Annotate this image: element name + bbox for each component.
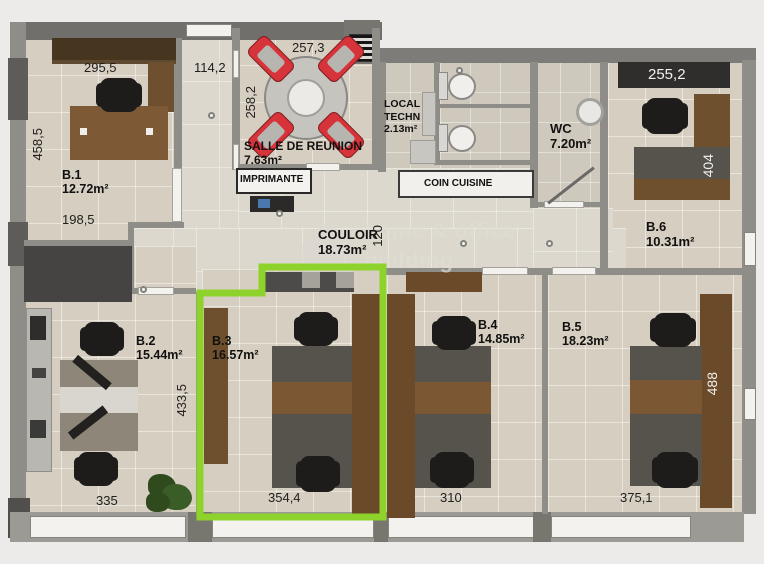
room-area-b1: 12.72m² <box>62 182 109 196</box>
office-chair-b2-bottom <box>78 452 114 486</box>
desk-wood-b6-low <box>634 179 730 200</box>
toilet-2-tank <box>438 124 448 152</box>
toilet-1-tank <box>438 72 448 100</box>
cabinet-local-1 <box>422 92 436 136</box>
wall-bottom-pier-1 <box>188 512 212 542</box>
desk-wood-b5-panel <box>700 294 732 508</box>
dim-b3-bottom: 354,4 <box>268 490 301 505</box>
desk-wood-b4-mid <box>415 382 491 414</box>
meeting-table-hub <box>287 79 325 117</box>
room-name-local-1: LOCAL <box>384 98 420 111</box>
ceiling-light-1 <box>276 210 283 217</box>
desk-return-b1 <box>148 62 174 112</box>
desk-gray-b4-top <box>415 346 491 382</box>
dim-b6-top: 255,2 <box>648 66 686 83</box>
room-area-wc: 7.20m² <box>550 137 591 152</box>
window-bottom-2 <box>212 516 374 538</box>
dim-b5-desk: 488 <box>704 372 720 395</box>
room-label-printer: IMPRIMANTE <box>240 174 303 186</box>
window-right-1 <box>744 232 756 266</box>
watermark-line-1: home & office <box>364 218 516 244</box>
room-name-b5: B.5 <box>562 320 609 334</box>
room-name-meeting: SALLE DE REUNION <box>244 140 362 154</box>
room-label-b4: B.4 14.85m² <box>478 318 525 347</box>
room-label-couloir: COULOIR 18.73m² <box>318 228 378 258</box>
wall-b4-b5 <box>542 274 548 514</box>
desk-wood-b5-mid <box>630 380 702 414</box>
room-name-couloir: COULOIR <box>318 228 378 243</box>
room-name-b4: B.4 <box>478 318 525 332</box>
office-chair-b5-top <box>654 313 692 347</box>
desk-b1-handle-1 <box>80 128 87 135</box>
desk-gray-b3-top <box>272 346 352 382</box>
ceiling-light-5 <box>208 112 215 119</box>
sideboard-b3 <box>204 308 228 464</box>
ceiling-light-2 <box>140 286 147 293</box>
wall-b1-bottom-a <box>128 222 184 228</box>
dim-entry-top: 114,2 <box>194 60 226 75</box>
office-chair-b2-top <box>84 322 120 356</box>
plant-leaf-3 <box>146 492 170 512</box>
wall-b2-b3 <box>196 292 202 514</box>
office-chair-b3-bottom <box>300 456 336 492</box>
dim-b4-bottom: 310 <box>440 490 462 505</box>
door-b5 <box>552 267 596 275</box>
room-area-b5: 18.23m² <box>562 334 609 348</box>
room-area-meeting: 7.63m² <box>244 154 362 168</box>
room-area-b3: 16.57m² <box>212 348 259 362</box>
dim-b2-bottom: 335 <box>96 493 118 508</box>
room-area-couloir: 18.73m² <box>318 243 378 258</box>
window-bottom-1 <box>30 516 186 538</box>
wall-left-pier-1 <box>8 58 28 120</box>
wall-top-right <box>378 48 756 63</box>
dim-couloir-width: 120 <box>370 225 385 247</box>
cabinet-local-2 <box>410 140 436 164</box>
room-area-b2: 15.44m² <box>136 348 183 362</box>
ceiling-light-6 <box>456 67 463 74</box>
dim-b6-desk: 404 <box>700 154 716 177</box>
room-area-b4: 14.85m² <box>478 332 525 346</box>
room-label-b3: B.3 16.57m² <box>212 334 259 363</box>
window-right-2 <box>744 388 756 420</box>
room-name-b2: B.2 <box>136 334 183 348</box>
floor-plan-page: { "watermark": { "line1": "home & office… <box>0 0 764 564</box>
desk-b1-handle-2 <box>146 128 153 135</box>
side-desk-item-1 <box>30 316 46 340</box>
ceiling-light-4 <box>546 240 553 247</box>
wall-stall-divider <box>434 104 534 108</box>
room-label-b1: B.1 12.72m² <box>62 168 109 197</box>
side-desk-item-2 <box>32 368 46 378</box>
toilet-1-bowl <box>448 73 476 100</box>
side-desk-item-3 <box>30 420 46 438</box>
toilet-2-bowl <box>448 125 476 152</box>
window-bottom-4 <box>551 516 691 538</box>
desk-gray-b5-top <box>630 346 702 380</box>
room-name-wc: WC <box>550 122 591 137</box>
room-area-local: 2.13m² <box>384 123 420 136</box>
dim-b1-left: 458,5 <box>30 128 45 161</box>
office-chair-b3-top <box>298 312 334 346</box>
room-name-b3: B.3 <box>212 334 259 348</box>
room-label-local: LOCAL TECHN 2.13m² <box>384 98 420 136</box>
room-label-b5: B.5 18.23m² <box>562 320 609 349</box>
storage-b2-top <box>24 246 132 302</box>
desk-wood-b4-panel <box>387 294 415 518</box>
room-name-b1: B.1 <box>62 168 109 182</box>
printer-screen <box>258 199 270 208</box>
dim-meeting-left: 258,2 <box>243 86 258 119</box>
office-chair-b5-bottom <box>656 452 694 488</box>
dim-b1-inner: 198,5 <box>62 212 95 227</box>
dim-b5-bottom: 375,1 <box>620 490 653 505</box>
wardrobe-b1 <box>52 38 176 62</box>
entry-window <box>186 24 232 37</box>
office-chair-b1 <box>100 78 138 112</box>
dim-b2-right: 433,5 <box>174 384 189 417</box>
desk-wood-b3-panel <box>352 294 384 518</box>
printer <box>250 196 294 212</box>
door-b1 <box>172 168 182 222</box>
office-chair-b4-top <box>436 316 472 350</box>
desk-wood-b3-mid <box>272 382 352 414</box>
room-label-meeting: SALLE DE REUNION 7.63m² <box>244 140 362 168</box>
wall-wc-right <box>600 62 608 272</box>
room-label-b6: B.6 10.31m² <box>646 220 694 250</box>
room-name-b6: B.6 <box>646 220 694 235</box>
dim-b1-top: 295,5 <box>84 60 117 75</box>
dim-meeting-top: 257,3 <box>292 40 325 55</box>
door-meeting-1 <box>233 50 239 78</box>
office-chair-b4-bottom <box>434 452 470 488</box>
wall-bottom-pier-3 <box>533 512 551 542</box>
room-label-kitchen: COIN CUISINE <box>424 178 492 190</box>
room-label-b2: B.2 15.44m² <box>136 334 183 363</box>
room-area-b6: 10.31m² <box>646 235 694 250</box>
office-chair-b6 <box>646 98 684 134</box>
room-label-wc: WC 7.20m² <box>550 122 591 152</box>
wall-right <box>742 60 756 514</box>
room-name-local-2: TECHN <box>384 111 420 124</box>
window-bottom-3 <box>388 516 534 538</box>
wall-stall-bottom <box>434 160 534 165</box>
